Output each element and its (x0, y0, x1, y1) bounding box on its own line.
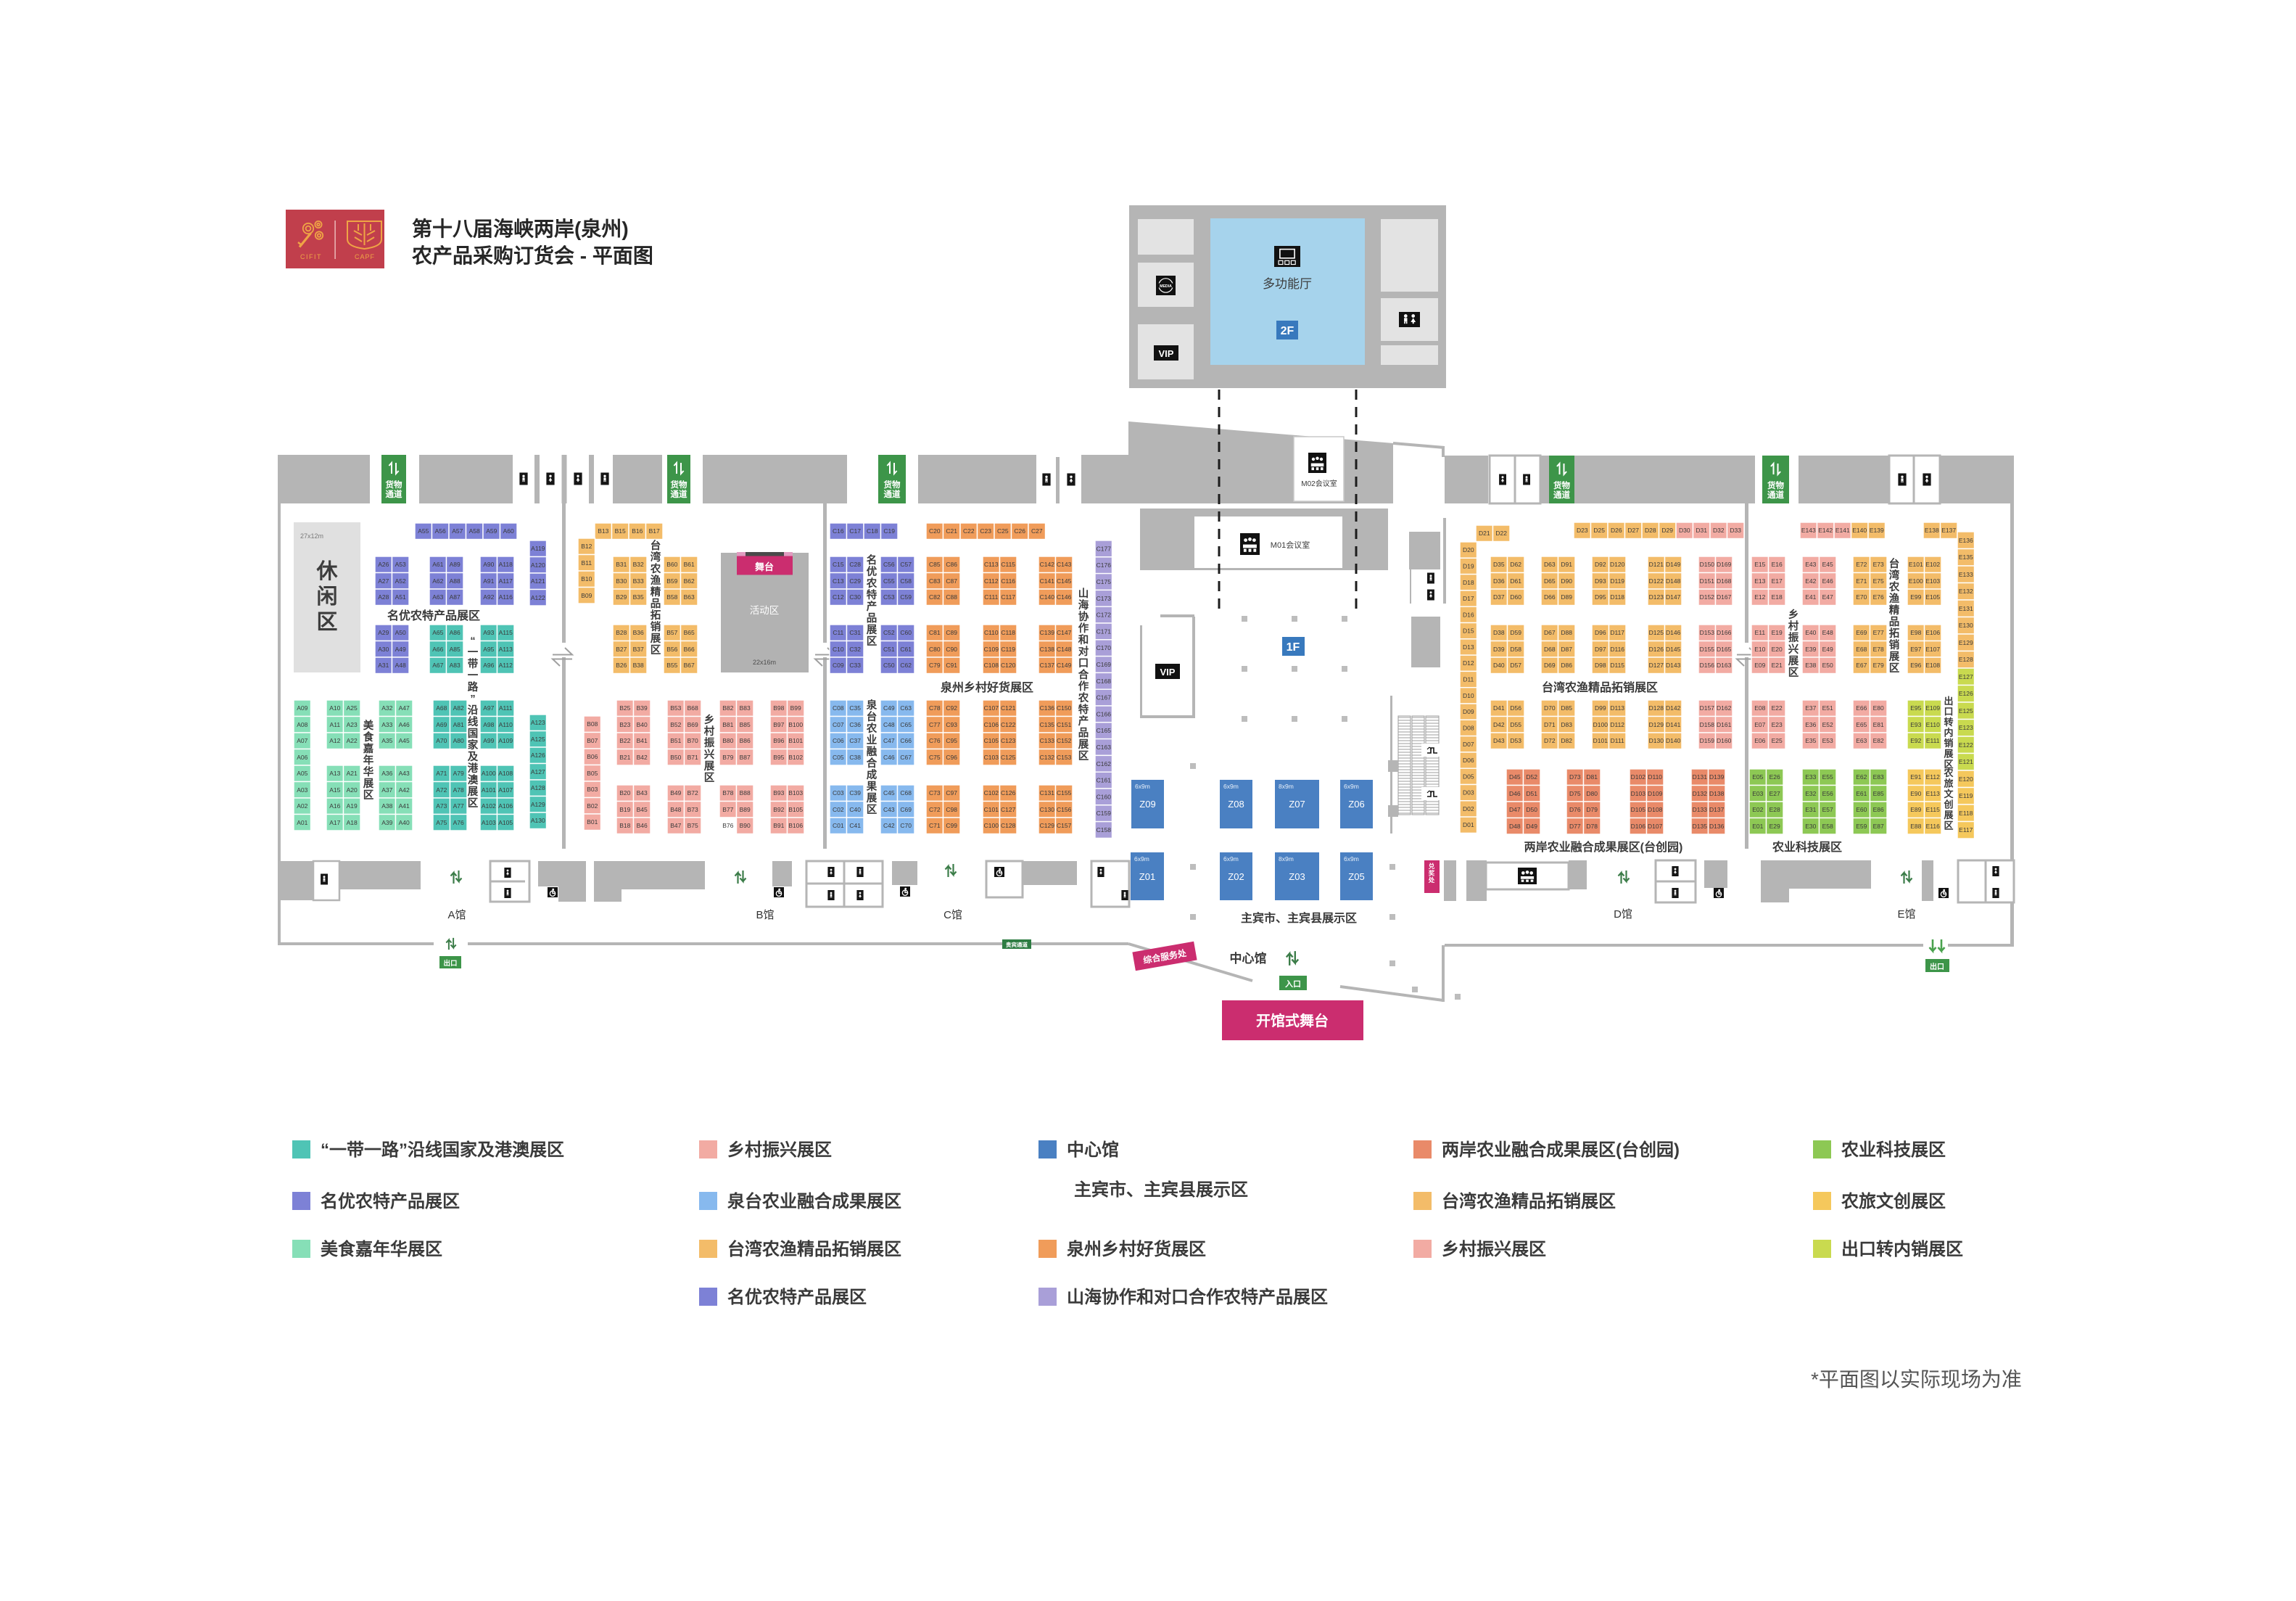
svg-text:C42: C42 (883, 822, 895, 829)
svg-text:B80: B80 (722, 737, 733, 744)
svg-text:D41: D41 (1493, 704, 1505, 712)
svg-text:C47: C47 (883, 737, 895, 744)
svg-text:D137: D137 (1709, 806, 1725, 813)
svg-text:E87: E87 (1873, 823, 1884, 830)
svg-text:B49: B49 (670, 789, 681, 797)
svg-text:C67: C67 (900, 754, 912, 761)
svg-text:D35: D35 (1493, 561, 1505, 568)
svg-text:中心馆: 中心馆 (1067, 1140, 1119, 1160)
svg-text:A128: A128 (531, 784, 545, 791)
svg-text:B32: B32 (633, 561, 644, 568)
svg-text:E49: E49 (1822, 646, 1833, 653)
svg-text:C98: C98 (946, 806, 957, 813)
svg-text:主宾市、主宾县展示区: 主宾市、主宾县展示区 (1074, 1180, 1248, 1200)
svg-text:名优农特产品展区: 名优农特产品展区 (321, 1191, 460, 1211)
svg-text:A38: A38 (381, 802, 392, 810)
svg-text:D12: D12 (1463, 659, 1474, 667)
svg-text:B79: B79 (722, 754, 733, 761)
svg-text:山海协作和对口合作农特产品展区: 山海协作和对口合作农特产品展区 (1078, 588, 1089, 762)
svg-text:B78: B78 (722, 789, 733, 797)
svg-text:B28: B28 (616, 629, 627, 636)
svg-text:兑奖处: 兑奖处 (1428, 863, 1435, 884)
svg-text:D128: D128 (1649, 704, 1664, 712)
svg-text:D168: D168 (1717, 577, 1732, 585)
svg-text:通道: 通道 (671, 489, 687, 499)
svg-text:C162: C162 (1097, 760, 1112, 767)
svg-text:B96: B96 (773, 737, 784, 744)
svg-text:B105: B105 (788, 806, 803, 813)
svg-text:E57: E57 (1822, 806, 1833, 813)
svg-text:D163: D163 (1717, 662, 1732, 669)
svg-text:D32: D32 (1713, 527, 1725, 534)
svg-text:E141: E141 (1835, 527, 1850, 534)
svg-text:C76: C76 (929, 737, 941, 744)
svg-text:C132: C132 (1040, 754, 1055, 761)
svg-text:B63: B63 (684, 593, 695, 601)
svg-text:Z06: Z06 (1348, 799, 1364, 810)
svg-text:开馆式舞台: 开馆式舞台 (1256, 1012, 1329, 1029)
svg-text:A11: A11 (330, 721, 341, 728)
svg-text:C171: C171 (1097, 627, 1112, 635)
svg-text:C39: C39 (849, 789, 861, 797)
svg-text:A41: A41 (399, 802, 410, 810)
svg-text:D106: D106 (1631, 823, 1646, 830)
svg-text:A130: A130 (531, 817, 545, 824)
svg-text:D02: D02 (1463, 805, 1474, 812)
svg-text:台湾农渔精品拓销展区: 台湾农渔精品拓销展区 (1442, 1191, 1616, 1211)
svg-text:A03: A03 (297, 786, 307, 794)
svg-text:乡村振兴展区: 乡村振兴展区 (1442, 1240, 1546, 1259)
svg-text:D63: D63 (1544, 561, 1556, 568)
svg-text:C125: C125 (1001, 754, 1016, 761)
svg-text:27x12m: 27x12m (300, 532, 323, 540)
svg-text:C20: C20 (929, 527, 941, 535)
svg-text:D91: D91 (1561, 561, 1572, 568)
svg-text:C158: C158 (1097, 826, 1112, 834)
svg-text:泉台农业融合成果展区: 泉台农业融合成果展区 (866, 699, 877, 816)
svg-text:D50: D50 (1526, 806, 1537, 813)
svg-text:C176: C176 (1097, 561, 1112, 569)
svg-text:D152: D152 (1700, 593, 1715, 601)
svg-text:A22: A22 (347, 737, 358, 744)
svg-text:D149: D149 (1666, 561, 1681, 568)
svg-text:C36: C36 (849, 721, 861, 728)
svg-text:D141: D141 (1666, 721, 1681, 728)
svg-text:A118: A118 (499, 561, 513, 568)
svg-text:D116: D116 (1610, 646, 1624, 653)
svg-text:E111: E111 (1926, 737, 1940, 744)
svg-text:D38: D38 (1493, 629, 1505, 636)
svg-text:D167: D167 (1717, 593, 1732, 601)
svg-text:D10: D10 (1463, 692, 1474, 699)
svg-text:C11: C11 (833, 629, 843, 636)
svg-text:D95: D95 (1595, 593, 1606, 601)
svg-text:B03: B03 (587, 786, 598, 793)
svg-text:C10: C10 (833, 646, 844, 653)
svg-text:22x16m: 22x16m (753, 659, 776, 666)
svg-text:E119: E119 (1959, 792, 1973, 799)
svg-text:E117: E117 (1959, 826, 1973, 834)
svg-text:E17: E17 (1772, 577, 1783, 585)
svg-text:D111: D111 (1611, 737, 1624, 744)
svg-text:货物: 货物 (385, 480, 402, 490)
svg-text:农旅文创展区: 农旅文创展区 (1943, 767, 1954, 831)
svg-text:A15: A15 (329, 786, 340, 794)
svg-text:A55: A55 (418, 527, 429, 535)
svg-text:C100: C100 (984, 822, 999, 829)
svg-text:贵宾通道: 贵宾通道 (1006, 941, 1028, 948)
svg-text:山海协作和对口合作农特产品展区: 山海协作和对口合作农特产品展区 (1067, 1287, 1328, 1307)
svg-text:D142: D142 (1666, 704, 1681, 712)
svg-text:C145: C145 (1057, 577, 1072, 585)
svg-text:A75: A75 (436, 819, 447, 826)
svg-text:C150: C150 (1057, 704, 1072, 712)
svg-text:A120: A120 (531, 561, 545, 569)
svg-text:D122: D122 (1649, 577, 1664, 585)
svg-text:C137: C137 (1040, 662, 1055, 669)
svg-text:A50: A50 (395, 629, 406, 636)
svg-text:D117: D117 (1610, 629, 1624, 636)
svg-text:D125: D125 (1649, 629, 1664, 636)
svg-text:A12: A12 (329, 737, 340, 744)
svg-text:E122: E122 (1959, 741, 1973, 749)
svg-text:D119: D119 (1610, 577, 1624, 585)
svg-text:CIFIT: CIFIT (300, 253, 322, 260)
svg-text:C160: C160 (1097, 793, 1112, 800)
svg-text:E46: E46 (1822, 577, 1833, 585)
svg-text:A73: A73 (436, 802, 447, 810)
svg-text:B71: B71 (687, 754, 698, 761)
svg-text:Z02: Z02 (1228, 871, 1244, 882)
svg-text:C03: C03 (833, 789, 844, 797)
svg-text:C48: C48 (883, 721, 895, 728)
svg-text:C177: C177 (1097, 545, 1112, 552)
svg-text:B29: B29 (616, 593, 627, 601)
svg-text:D131: D131 (1693, 773, 1708, 781)
svg-text:E20: E20 (1772, 646, 1783, 653)
svg-text:8x9m: 8x9m (1279, 855, 1294, 863)
svg-text:E28: E28 (1770, 806, 1780, 813)
svg-text:泉台农业融合成果展区: 泉台农业融合成果展区 (727, 1191, 901, 1211)
svg-text:E113: E113 (1926, 790, 1940, 797)
svg-text:D21: D21 (1479, 530, 1490, 537)
svg-text:B23: B23 (619, 721, 630, 728)
svg-text:A56: A56 (435, 527, 446, 535)
svg-text:B66: B66 (684, 646, 695, 653)
svg-text:C83: C83 (929, 577, 941, 585)
svg-text:B06: B06 (587, 753, 598, 760)
svg-text:E60: E60 (1856, 806, 1867, 813)
svg-text:VIP: VIP (1160, 667, 1176, 678)
svg-text:B69: B69 (687, 721, 698, 728)
svg-text:C105: C105 (984, 737, 999, 744)
svg-text:C120: C120 (1001, 662, 1016, 669)
svg-text:D69: D69 (1544, 662, 1556, 669)
svg-text:A21: A21 (347, 770, 358, 777)
svg-text:D51: D51 (1526, 790, 1537, 797)
svg-text:A95: A95 (483, 646, 494, 653)
svg-text:C167: C167 (1097, 694, 1112, 701)
svg-text:A83: A83 (450, 662, 461, 669)
svg-text:B59: B59 (666, 577, 677, 585)
svg-text:舞台: 舞台 (754, 561, 774, 572)
svg-text:D29: D29 (1661, 527, 1673, 534)
svg-text:D70: D70 (1544, 704, 1556, 712)
svg-text:C89: C89 (946, 629, 957, 636)
svg-text:C13: C13 (833, 577, 844, 585)
svg-text:出口转内销展区: 出口转内销展区 (1841, 1239, 1963, 1259)
svg-text:D99: D99 (1595, 704, 1606, 712)
svg-text:C168: C168 (1097, 678, 1112, 685)
svg-text:D82: D82 (1561, 737, 1572, 744)
svg-text:E15: E15 (1754, 561, 1765, 568)
svg-text:C40: C40 (849, 806, 861, 813)
svg-text:C153: C153 (1057, 754, 1072, 761)
svg-text:D49: D49 (1526, 823, 1537, 830)
svg-text:E88: E88 (1910, 823, 1921, 830)
svg-text:B67: B67 (684, 662, 695, 669)
svg-text:D75: D75 (1569, 790, 1581, 797)
svg-text:E132: E132 (1959, 588, 1973, 595)
svg-text:C46: C46 (883, 754, 895, 761)
svg-text:E116: E116 (1926, 823, 1940, 830)
svg-text:D138: D138 (1709, 790, 1725, 797)
svg-text:台湾农渔精品拓销展区: 台湾农渔精品拓销展区 (1542, 680, 1658, 694)
svg-text:A13: A13 (329, 770, 340, 777)
svg-text:E72: E72 (1856, 561, 1867, 568)
svg-text:D92: D92 (1595, 561, 1606, 568)
svg-text:B95: B95 (773, 754, 784, 761)
svg-text:D145: D145 (1666, 646, 1681, 653)
svg-text:B100: B100 (788, 721, 803, 728)
svg-text:C33: C33 (849, 662, 861, 669)
svg-text:D123: D123 (1649, 593, 1664, 601)
svg-text:E131: E131 (1959, 605, 1973, 612)
svg-text:D143: D143 (1666, 662, 1681, 669)
svg-text:乡村振兴展区: 乡村振兴展区 (727, 1140, 832, 1160)
svg-text:6x9m: 6x9m (1223, 783, 1239, 790)
svg-text:C107: C107 (984, 704, 999, 712)
svg-text:A129: A129 (531, 801, 545, 808)
svg-text:Z09: Z09 (1139, 799, 1155, 810)
svg-text:E66: E66 (1856, 704, 1867, 712)
svg-text:A26: A26 (378, 561, 389, 568)
svg-text:D86: D86 (1561, 662, 1572, 669)
svg-text:D161: D161 (1717, 721, 1732, 728)
svg-text:A39: A39 (381, 819, 392, 826)
svg-text:A08: A08 (297, 721, 307, 728)
svg-text:A48: A48 (395, 662, 406, 669)
svg-text:C21: C21 (946, 527, 957, 535)
svg-text:A102: A102 (482, 802, 496, 810)
svg-text:C15: C15 (833, 561, 844, 568)
svg-text:C29: C29 (849, 577, 861, 585)
svg-text:E30: E30 (1805, 823, 1816, 830)
svg-text:D90: D90 (1561, 577, 1572, 585)
svg-text:E08: E08 (1754, 704, 1765, 712)
svg-text:D60: D60 (1510, 593, 1521, 601)
svg-text:D88: D88 (1561, 629, 1572, 636)
svg-text:E47: E47 (1822, 593, 1833, 601)
svg-text:E96: E96 (1910, 662, 1921, 669)
svg-text:C55: C55 (883, 577, 895, 585)
svg-text:C65: C65 (900, 721, 912, 728)
svg-text:A86: A86 (450, 629, 461, 636)
svg-text:D160: D160 (1717, 737, 1732, 744)
svg-text:D107: D107 (1648, 823, 1663, 830)
svg-text:D23: D23 (1577, 527, 1588, 534)
svg-text:C90: C90 (946, 646, 957, 653)
svg-text:美食嘉年华展区: 美食嘉年华展区 (363, 719, 374, 802)
svg-text:D155: D155 (1700, 646, 1715, 653)
svg-text:D62: D62 (1510, 561, 1521, 568)
svg-text:C96: C96 (946, 754, 957, 761)
svg-text:6x9m: 6x9m (1223, 855, 1239, 863)
svg-text:D31: D31 (1696, 527, 1707, 534)
svg-text:B02: B02 (587, 802, 598, 810)
svg-text:A05: A05 (297, 770, 307, 777)
svg-text:出口: 出口 (443, 959, 457, 968)
svg-text:C113: C113 (984, 561, 999, 568)
svg-text:A123: A123 (531, 719, 545, 726)
svg-text:E13: E13 (1754, 577, 1765, 585)
svg-text:D53: D53 (1510, 737, 1521, 744)
svg-text:A105: A105 (498, 819, 513, 826)
svg-text:*平面图以实际现场为准: *平面图以实际现场为准 (1811, 1368, 2022, 1391)
svg-text:B70: B70 (687, 737, 698, 744)
svg-text:B52: B52 (670, 721, 681, 728)
svg-text:E79: E79 (1873, 662, 1884, 669)
svg-text:B85: B85 (740, 721, 751, 728)
svg-text:A78: A78 (453, 786, 464, 794)
svg-text:C62: C62 (900, 662, 912, 669)
svg-text:C72: C72 (929, 806, 941, 813)
svg-text:C165: C165 (1097, 727, 1112, 734)
svg-text:A100: A100 (482, 770, 496, 777)
svg-text:通道: 通道 (1767, 490, 1785, 500)
svg-text:E12: E12 (1754, 593, 1765, 601)
svg-text:D01: D01 (1463, 821, 1474, 828)
svg-text:D105: D105 (1631, 806, 1646, 813)
svg-text:D96: D96 (1595, 629, 1606, 636)
svg-text:B43: B43 (637, 789, 648, 797)
svg-text:农产品采购订货会 - 平面图: 农产品采购订货会 - 平面图 (411, 244, 653, 267)
svg-text:Z05: Z05 (1348, 871, 1364, 882)
svg-text:E125: E125 (1959, 707, 1973, 715)
svg-text:B88: B88 (740, 789, 751, 797)
svg-text:B01: B01 (587, 818, 598, 826)
svg-text:E70: E70 (1856, 593, 1867, 601)
svg-text:A89: A89 (450, 561, 461, 568)
svg-text:D139: D139 (1709, 773, 1725, 781)
svg-text:D48: D48 (1509, 823, 1521, 830)
svg-text:C71: C71 (929, 822, 941, 829)
svg-text:B33: B33 (633, 577, 644, 585)
svg-text:C129: C129 (1040, 822, 1055, 829)
svg-text:A126: A126 (531, 752, 545, 759)
svg-text:A97: A97 (483, 704, 494, 712)
svg-text:C99: C99 (946, 822, 957, 829)
svg-text:E40: E40 (1805, 629, 1816, 636)
svg-text:D57: D57 (1510, 662, 1521, 669)
svg-text:A49: A49 (395, 646, 406, 653)
svg-text:C111: C111 (984, 593, 998, 601)
svg-text:C85: C85 (929, 561, 941, 568)
svg-text:E83: E83 (1873, 773, 1884, 781)
svg-text:E67: E67 (1856, 662, 1867, 669)
svg-text:A99: A99 (483, 737, 494, 744)
svg-text:B26: B26 (616, 662, 627, 669)
svg-text:C50: C50 (883, 662, 895, 669)
svg-text:C79: C79 (929, 662, 941, 669)
svg-text:D103: D103 (1631, 790, 1646, 797)
svg-text:A62: A62 (432, 577, 443, 585)
svg-text:E101: E101 (1909, 561, 1923, 568)
svg-text:D87: D87 (1561, 646, 1572, 653)
svg-text:E136: E136 (1959, 537, 1973, 544)
svg-text:D07: D07 (1463, 741, 1474, 748)
svg-text:D81: D81 (1586, 773, 1598, 781)
svg-text:A23: A23 (347, 721, 358, 728)
svg-text:A109: A109 (498, 737, 513, 744)
svg-text:E75: E75 (1873, 577, 1884, 585)
svg-text:E86: E86 (1873, 806, 1884, 813)
svg-text:D11: D11 (1463, 676, 1474, 683)
svg-text:B12: B12 (581, 543, 592, 550)
svg-text:D109: D109 (1648, 790, 1663, 797)
svg-text:C63: C63 (900, 704, 912, 712)
svg-text:台湾农渔精品拓销展区: 台湾农渔精品拓销展区 (727, 1239, 901, 1259)
svg-text:D115: D115 (1610, 662, 1624, 669)
svg-text:B82: B82 (722, 704, 733, 712)
svg-text:6x9m: 6x9m (1135, 783, 1150, 790)
svg-text:E23: E23 (1772, 721, 1783, 728)
svg-text:D108: D108 (1648, 806, 1663, 813)
svg-text:C126: C126 (1001, 789, 1016, 797)
svg-text:C101: C101 (984, 806, 999, 813)
svg-text:B11: B11 (582, 559, 592, 567)
svg-text:C147: C147 (1057, 629, 1072, 636)
svg-text:D15: D15 (1463, 627, 1474, 635)
svg-text:C43: C43 (883, 806, 895, 813)
svg-text:E137: E137 (1941, 527, 1956, 534)
svg-text:A57: A57 (452, 527, 463, 535)
svg-text:货物: 货物 (1553, 480, 1571, 490)
svg-text:B39: B39 (637, 704, 648, 712)
svg-text:C26: C26 (1014, 527, 1025, 535)
svg-text:D40: D40 (1493, 662, 1505, 669)
svg-text:C75: C75 (929, 754, 941, 761)
svg-text:Z07: Z07 (1289, 799, 1305, 810)
svg-text:C49: C49 (883, 704, 895, 712)
svg-text:A87: A87 (450, 593, 461, 601)
svg-text:D166: D166 (1717, 629, 1732, 636)
svg-text:A42: A42 (399, 786, 410, 794)
svg-text:E91: E91 (1910, 773, 1921, 781)
svg-text:C57: C57 (900, 561, 912, 568)
svg-text:A70: A70 (436, 737, 447, 744)
svg-text:E128: E128 (1959, 656, 1973, 663)
svg-text:入口: 入口 (1285, 979, 1301, 989)
svg-text:D98: D98 (1595, 662, 1606, 669)
svg-text:D馆: D馆 (1614, 908, 1632, 921)
svg-text:B57: B57 (666, 629, 677, 636)
svg-text:E26: E26 (1770, 773, 1780, 781)
svg-text:E69: E69 (1856, 629, 1867, 636)
svg-text:E27: E27 (1770, 790, 1780, 797)
svg-text:VIP: VIP (1159, 348, 1174, 359)
svg-text:C93: C93 (946, 721, 957, 728)
